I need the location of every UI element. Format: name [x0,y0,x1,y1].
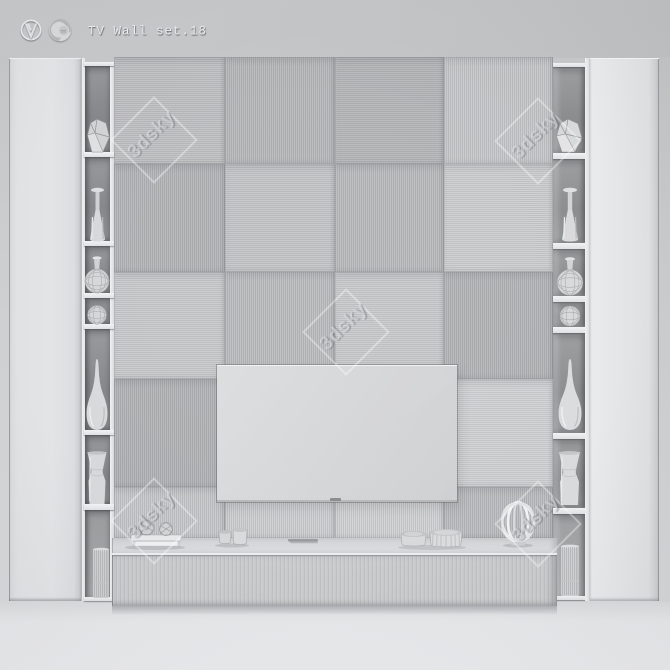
svg-text:TV Wall set.18: TV Wall set.18 [88,25,207,39]
